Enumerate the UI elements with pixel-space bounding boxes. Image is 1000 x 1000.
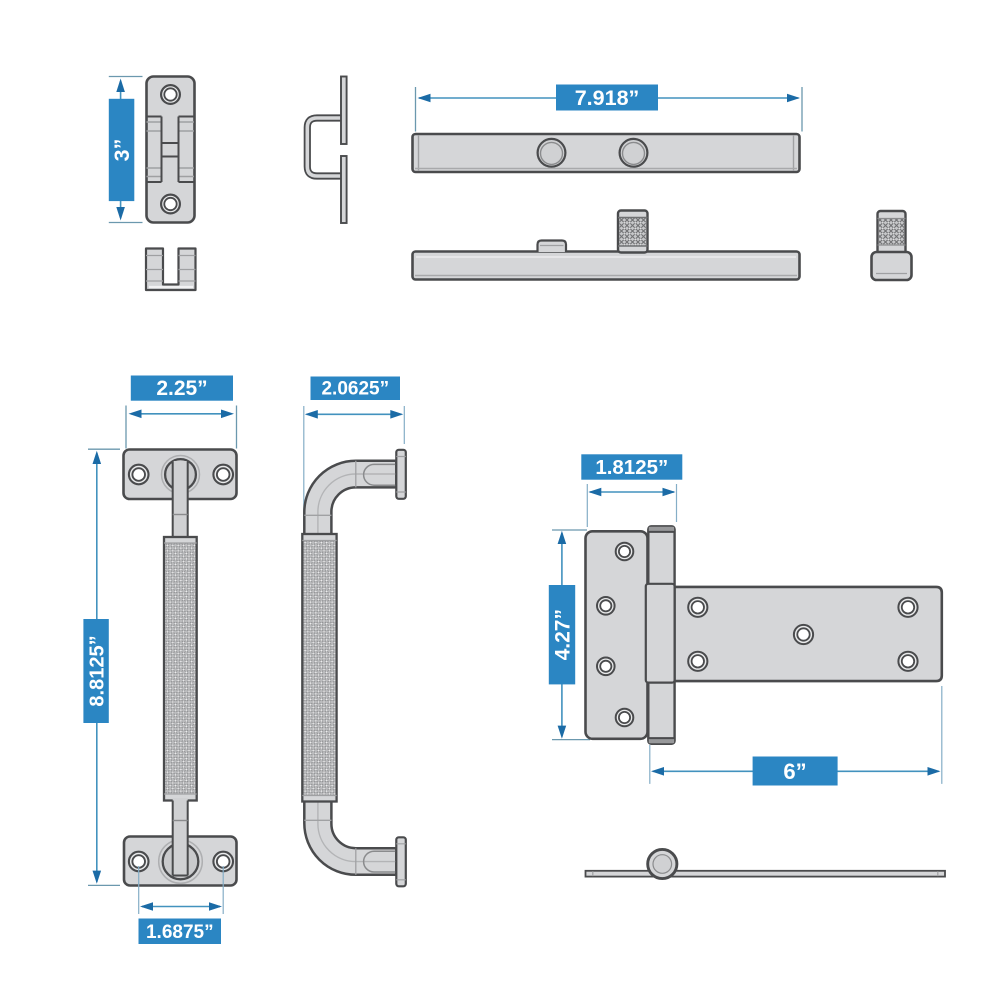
svg-text:4.27”: 4.27” xyxy=(552,609,575,660)
svg-text:6”: 6” xyxy=(783,759,806,784)
svg-text:8.8125”: 8.8125” xyxy=(87,635,109,706)
svg-text:7.918”: 7.918” xyxy=(575,86,640,110)
svg-text:3”: 3” xyxy=(110,139,134,162)
svg-text:1.6875”: 1.6875” xyxy=(146,922,214,943)
svg-text:2.0625”: 2.0625” xyxy=(321,379,389,400)
svg-text:1.8125”: 1.8125” xyxy=(595,456,668,479)
svg-text:2.25”: 2.25” xyxy=(156,377,207,400)
